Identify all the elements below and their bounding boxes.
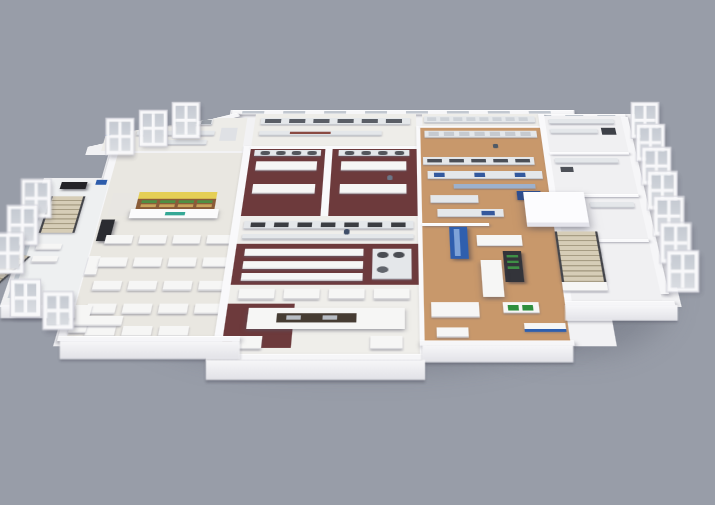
range-counter [243, 221, 413, 229]
pot [292, 151, 302, 155]
produce-bin-green [197, 200, 213, 203]
unit [427, 117, 436, 121]
front-wall-central [206, 354, 425, 360]
analyzer [560, 167, 574, 172]
cook-line [237, 216, 418, 244]
dining-table-row3 [92, 281, 123, 291]
cold-room [523, 192, 590, 227]
machine-row [428, 171, 543, 179]
service-counter-shelves [135, 199, 216, 209]
cooktop [274, 222, 289, 227]
glass-wall [7, 182, 51, 298]
elevator-column [449, 227, 469, 259]
black-unit [111, 138, 127, 144]
stair-landing [562, 282, 608, 291]
blue-front-unit [524, 323, 567, 332]
equipment-cabinet [219, 128, 238, 141]
piano [60, 182, 88, 189]
lab-bench [550, 129, 598, 134]
pot [361, 151, 371, 155]
staircase-left [39, 196, 86, 232]
staircase-right [555, 231, 607, 282]
unit [429, 132, 439, 137]
dining-table-row1 [138, 235, 167, 244]
steel-table [283, 289, 319, 300]
pot [307, 151, 317, 155]
unit [444, 132, 454, 137]
back-counter [338, 150, 409, 156]
kettle [265, 119, 282, 123]
dining-table-row2 [133, 257, 163, 267]
island-bench [339, 184, 406, 193]
unit [440, 117, 449, 121]
island-bench [252, 184, 316, 193]
cooktop [297, 222, 312, 227]
lab-bench [590, 202, 635, 208]
service-counter-base [129, 209, 219, 218]
unit [518, 117, 528, 121]
unit [474, 132, 485, 137]
blue-module [515, 173, 526, 177]
produce-bin-green [160, 200, 176, 203]
machine [430, 195, 478, 203]
cooktop [344, 222, 359, 227]
front-table [437, 327, 469, 337]
bench [35, 244, 62, 250]
green-cart [503, 302, 540, 313]
machine-top [449, 159, 464, 163]
machine-row [423, 157, 535, 165]
unit [479, 117, 488, 121]
cooktop [250, 222, 265, 227]
mixer [377, 252, 389, 258]
kettle [362, 119, 378, 123]
pot [378, 151, 387, 155]
bench-row [242, 261, 363, 269]
steel-table [148, 140, 207, 145]
green-slat [507, 261, 519, 264]
person [387, 175, 392, 180]
produce-bin-green [141, 200, 157, 203]
back-line [424, 131, 537, 138]
brand-mark [165, 212, 186, 216]
steel-table [238, 289, 275, 300]
island-bench [255, 161, 317, 170]
unit [459, 132, 469, 137]
floor-plane [0, 114, 715, 369]
blue-band [525, 329, 567, 332]
lab-bench [555, 158, 619, 163]
fridge-door [201, 120, 212, 124]
cooktop [368, 222, 383, 227]
blue-sign [106, 132, 116, 136]
unit [520, 132, 531, 137]
blue-module [481, 211, 495, 216]
conveyor [454, 184, 536, 188]
pass-window [276, 313, 357, 322]
service-counter-canopy [138, 192, 217, 199]
machine [437, 209, 504, 217]
unit [505, 132, 516, 137]
mixer [393, 252, 404, 258]
produce-bin-tan [140, 204, 156, 207]
pot [276, 151, 286, 155]
unit [490, 132, 501, 137]
front-cabinet [370, 336, 402, 349]
steel-table [329, 289, 365, 300]
dining-table-row4 [158, 304, 189, 314]
fridge-door [158, 120, 169, 124]
blue-module [434, 173, 445, 177]
green-crate [522, 305, 533, 311]
unit [492, 117, 501, 121]
mixer [377, 266, 389, 272]
machine-top [493, 159, 508, 163]
workbench [476, 235, 522, 246]
lab-bench [549, 119, 614, 124]
produce-bin-tan [196, 204, 212, 207]
dining-table-row1 [104, 235, 133, 244]
bench [31, 256, 58, 262]
tall-counter [481, 260, 505, 297]
analyzer [601, 128, 617, 135]
dining-table-row3 [162, 281, 192, 291]
produce-bin-tan [159, 204, 175, 207]
fridge-door [173, 120, 184, 124]
prep-counter [242, 234, 414, 239]
dining-table-row1 [172, 235, 201, 244]
front-wall-processing [420, 340, 575, 345]
elevator-stripe [454, 229, 461, 256]
kettle [289, 119, 306, 123]
dining-table-row3 [127, 281, 157, 291]
kettle [337, 119, 353, 123]
green-slat [506, 255, 518, 258]
training-kitchen-c [231, 244, 419, 285]
facility-3d-floorplan [0, 0, 715, 505]
unit [505, 117, 514, 121]
pass-equipment [322, 315, 337, 319]
unit [466, 117, 475, 121]
machine-top [515, 159, 530, 163]
training-kitchen-b [328, 149, 418, 216]
cooktop [391, 222, 406, 227]
machine-top [471, 159, 486, 163]
back-kitchen-central [251, 114, 416, 146]
dark-rack [503, 251, 525, 282]
back-counter [254, 150, 321, 156]
front-wall-dining [57, 336, 240, 341]
back-kitchen-right [422, 114, 540, 126]
unit [453, 117, 462, 121]
pot [395, 151, 404, 155]
isometric-scene [0, 0, 715, 505]
dining-table-row2 [98, 257, 128, 267]
bench-row [244, 249, 363, 257]
serving-counter [246, 308, 405, 329]
person [493, 144, 499, 149]
equipment-block [372, 249, 412, 280]
machine-top [427, 159, 442, 163]
pass-equipment [286, 315, 301, 319]
cook-line2 [424, 116, 535, 122]
dining-table-row4 [121, 304, 152, 314]
kettle [386, 119, 402, 123]
buffet-counter [72, 316, 123, 326]
red-tray-strip [290, 132, 331, 134]
wall-partial [422, 223, 489, 226]
counter [259, 131, 382, 136]
training-kitchen-a [241, 149, 326, 216]
pot [345, 151, 355, 155]
prep-kitchen [101, 118, 247, 151]
bench-row [241, 273, 363, 281]
pot [260, 151, 270, 155]
dining-table-row2 [167, 257, 197, 267]
green-slat [508, 266, 520, 269]
white-table [431, 302, 480, 317]
fridge-door [187, 120, 198, 124]
lab-wall [550, 152, 630, 155]
blue-module [474, 173, 485, 177]
island-bench [341, 161, 407, 170]
kettle [313, 119, 329, 123]
produce-bin-tan [178, 204, 194, 207]
cooktop [321, 222, 336, 227]
green-crate [508, 305, 519, 311]
front-wall-right [565, 301, 676, 306]
info-sign [95, 180, 107, 185]
steel-table [374, 289, 410, 300]
south-kitchen [220, 285, 420, 356]
prep-counter [136, 131, 215, 136]
produce-bin-green [178, 200, 194, 203]
hood-line [260, 118, 410, 125]
person [344, 229, 350, 234]
